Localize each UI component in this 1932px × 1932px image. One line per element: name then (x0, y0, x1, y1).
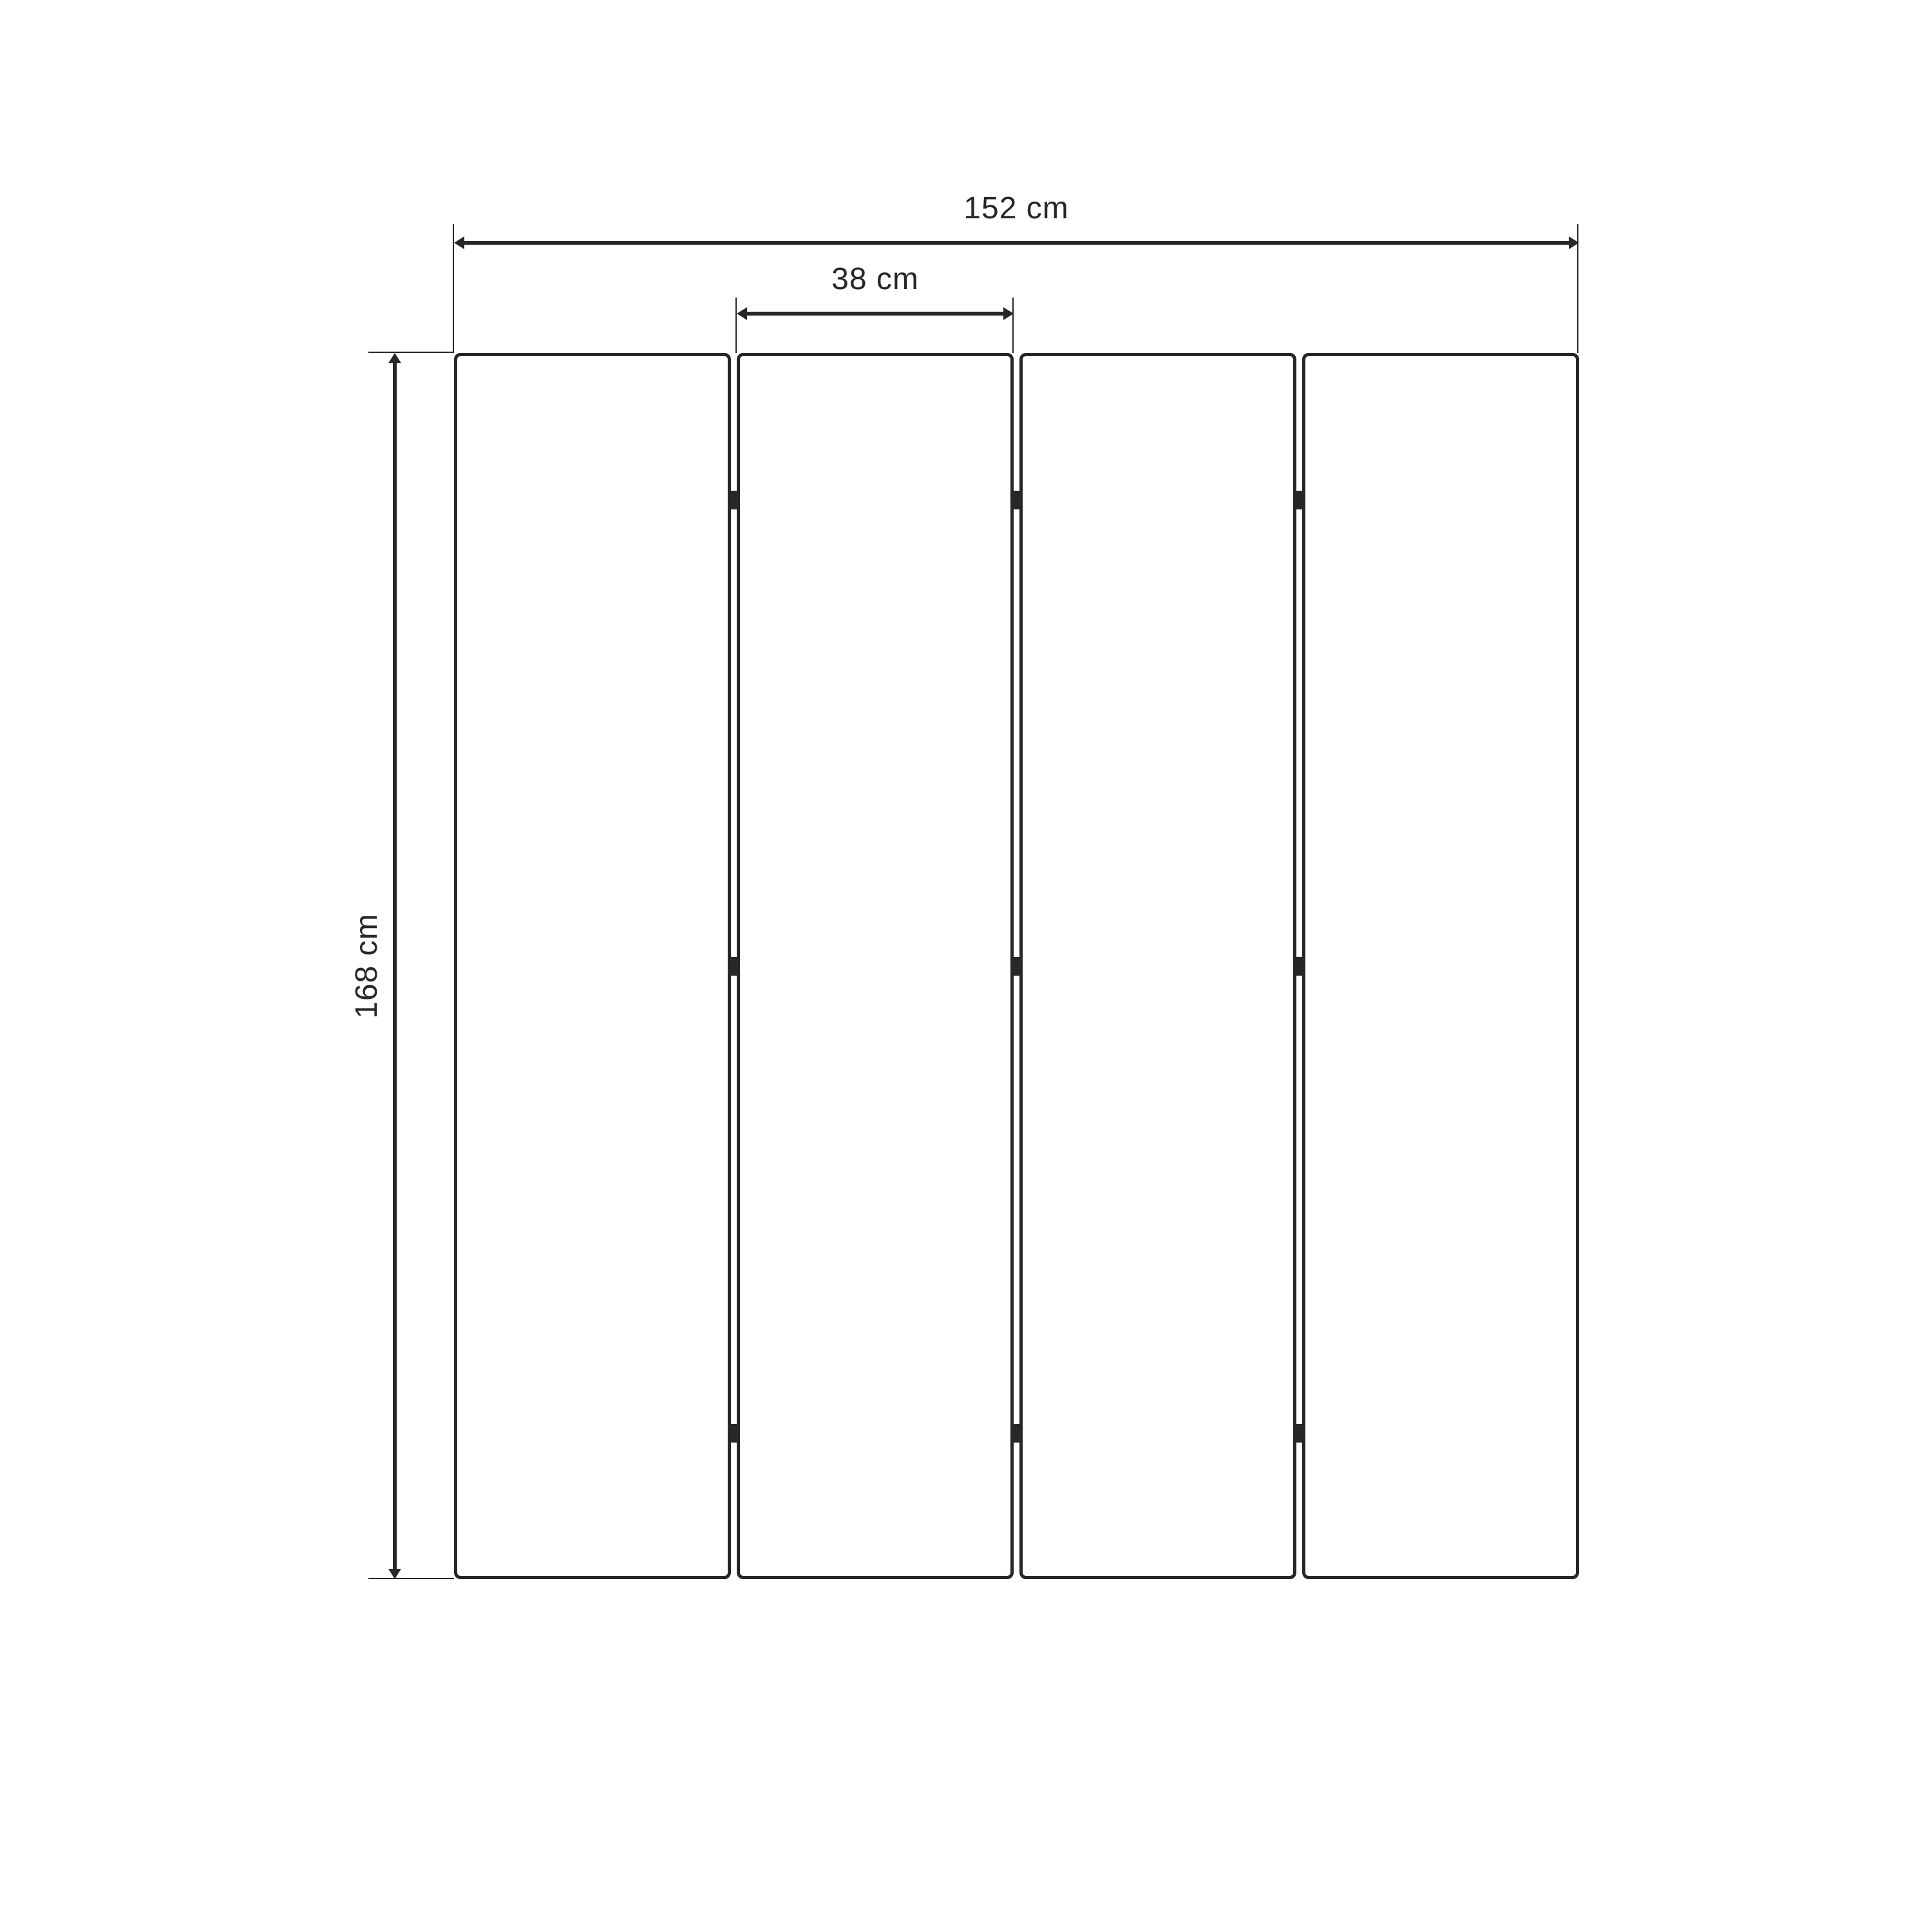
panel-4 (1302, 353, 1579, 1579)
panel-3 (1019, 353, 1296, 1579)
hinge-joint1-bottom (729, 1424, 738, 1443)
arrowhead-left-icon (454, 236, 464, 249)
dimension-height-label: 168 cm (350, 837, 384, 1095)
arrowhead-right-icon (1003, 307, 1014, 320)
panel-1 (454, 353, 731, 1579)
extension-line-height-top (368, 352, 454, 353)
diagram-canvas: 152 cm 38 cm 168 cm (0, 0, 1932, 1932)
hinge-joint3-bottom (1294, 1424, 1303, 1443)
hinge-joint3-top (1294, 491, 1303, 509)
dimension-line-panel-width (743, 312, 1007, 316)
hinge-joint1-middle (729, 957, 738, 976)
extension-line-height-bottom (368, 1578, 454, 1579)
hinge-joint2-bottom (1012, 1424, 1021, 1443)
hinge-joint1-top (729, 491, 738, 509)
panel-2 (737, 353, 1014, 1579)
dimension-line-total-width (460, 241, 1571, 245)
arrowhead-down-icon (388, 1569, 401, 1579)
arrowhead-left-icon (737, 307, 747, 320)
hinge-joint3-middle (1294, 957, 1303, 976)
hinge-joint2-middle (1012, 957, 1021, 976)
dimension-total-width-label: 152 cm (887, 192, 1145, 225)
hinge-joint2-top (1012, 491, 1021, 509)
dimension-line-height (393, 359, 397, 1573)
arrowhead-up-icon (388, 353, 401, 363)
extension-line-panel-width-left (735, 298, 737, 353)
dimension-panel-width-label: 38 cm (746, 263, 1004, 296)
arrowhead-right-icon (1569, 236, 1579, 249)
extension-line-panel-width-right (1012, 298, 1014, 353)
